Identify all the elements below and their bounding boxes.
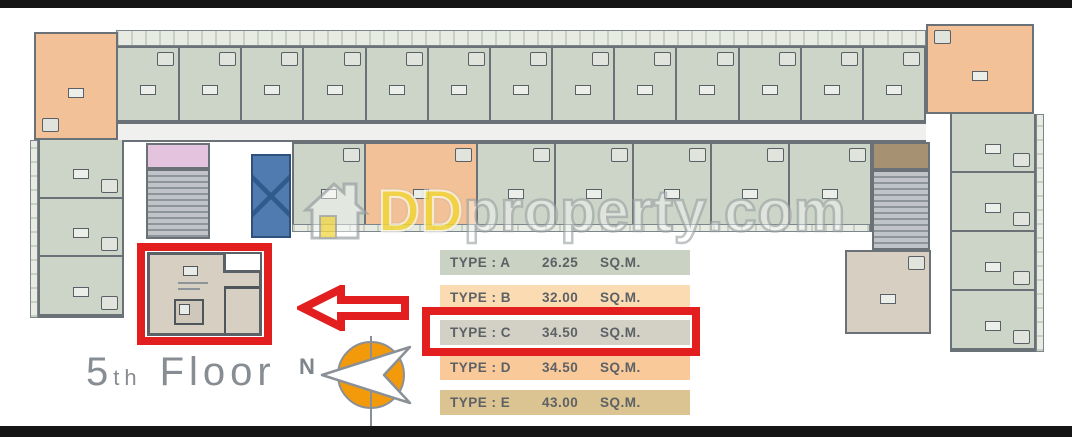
unit-label-chip [985, 203, 1001, 213]
floor-title: 5thFloor [86, 350, 276, 395]
legend-type-label: TYPE : E [450, 395, 542, 410]
right-core-roof [872, 142, 930, 170]
right-wing-units [950, 114, 1036, 352]
unit-label-chip [762, 85, 778, 95]
unit-bathroom [530, 52, 547, 66]
unit-label-chip [886, 85, 902, 95]
legend-area-unit: SQ.M. [600, 360, 690, 375]
legend-area-value: 32.00 [542, 290, 600, 305]
unit-cell [367, 46, 429, 122]
unit-bathroom [174, 299, 204, 325]
unit-bathroom [689, 148, 706, 162]
lift-lobby-room [146, 143, 210, 169]
watermark-house-icon [300, 176, 372, 247]
corner-unit-top-right [926, 24, 1034, 114]
unit-label-chip [985, 144, 1001, 154]
unit-bathroom [841, 52, 858, 66]
unit-bathroom [1013, 330, 1030, 344]
unit-cell [950, 291, 1036, 350]
type-c-unit-plan [147, 252, 262, 336]
unit-bathroom [406, 52, 423, 66]
unit-bathroom [767, 148, 784, 162]
unit-bathroom [654, 52, 671, 66]
unit-bathroom [533, 148, 550, 162]
unit-bathroom [455, 148, 472, 162]
unit-label-chip [985, 262, 1001, 272]
watermark-dd: DD [378, 180, 464, 244]
unit-bathroom [468, 52, 485, 66]
floorplan-page: DDproperty.com N 5thFloor [0, 0, 1072, 437]
legend-row: TYPE : E 43.00 SQ.M. [440, 390, 690, 415]
unit-cell [950, 173, 1036, 232]
unit-cell [38, 199, 124, 258]
unit-label-chip [513, 85, 529, 95]
legend-row: TYPE : D 34.50 SQ.M. [440, 355, 690, 380]
unit-cell [950, 114, 1036, 173]
watermark: DDproperty.com [300, 176, 846, 247]
unit-label-chip [637, 85, 653, 95]
legend-row-wrap: TYPE : D 34.50 SQ.M. [440, 355, 690, 380]
legend-type-label: TYPE : B [450, 290, 542, 305]
unit-bathroom [1013, 212, 1030, 226]
corner-unit-top-left [34, 32, 118, 140]
unit-cell [677, 46, 739, 122]
unit-label-chip [389, 85, 405, 95]
top-balcony-strip [116, 30, 926, 46]
unit-cell [615, 46, 677, 122]
unit-inner-wall [224, 286, 227, 333]
legend-area-unit: SQ.M. [600, 290, 690, 305]
unit-cell [740, 46, 802, 122]
unit-label-chip [68, 88, 84, 98]
compass-icon [318, 334, 422, 435]
unit-bathroom [281, 52, 298, 66]
unit-label-chip [575, 85, 591, 95]
lift-shaft [251, 154, 291, 238]
floor-plan [0, 0, 1072, 84]
unit-cell [38, 140, 124, 199]
unit-bathroom [101, 179, 118, 193]
unit-bathroom [344, 52, 361, 66]
unit-text-smudge [178, 282, 208, 284]
unit-cell [864, 46, 926, 122]
legend-area-value: 34.50 [542, 360, 600, 375]
unit-cell [429, 46, 491, 122]
unit-bathroom [717, 52, 734, 66]
unit-bathroom [1013, 153, 1030, 167]
unit-bathroom [343, 148, 360, 162]
top-black-bar [0, 0, 1072, 8]
unit-label-chip [985, 321, 1001, 331]
unit-cell [553, 46, 615, 122]
unit-cell [491, 46, 553, 122]
unit-bathroom [903, 52, 920, 66]
unit-label-chip [183, 266, 198, 276]
unit-bathroom [779, 52, 796, 66]
unit-plan-notch [223, 254, 260, 273]
legend-row-wrap: TYPE : C 34.50 SQ.M. [440, 320, 690, 345]
left-staircase [146, 169, 210, 239]
unit-bathroom [219, 52, 236, 66]
unit-cell [950, 232, 1036, 291]
unit-label-chip [73, 287, 89, 297]
legend-row-wrap: TYPE : E 43.00 SQ.M. [440, 390, 690, 415]
legend-highlight-frame [422, 307, 700, 356]
unit-text-smudge [178, 288, 200, 290]
unit-bathroom [1013, 271, 1030, 285]
unit-inner-wall [226, 286, 259, 289]
floor-number: 5 [86, 350, 113, 394]
pointer-arrow-icon [297, 285, 411, 336]
unit-cell [304, 46, 366, 122]
unit-cell [180, 46, 242, 122]
unit-bathroom [908, 256, 925, 270]
unit-label-chip [699, 85, 715, 95]
bottom-black-bar [0, 426, 1072, 437]
unit-label-chip [140, 85, 156, 95]
unit-cell [38, 257, 124, 316]
floor-word: Floor [160, 350, 276, 394]
right-lower-unit [845, 250, 931, 334]
unit-bathroom [849, 148, 866, 162]
unit-cell [118, 46, 180, 122]
unit-cell [242, 46, 304, 122]
legend-area-value: 43.00 [542, 395, 600, 410]
compass-north-label: N [299, 354, 315, 380]
legend-area-value: 26.25 [542, 255, 600, 270]
unit-cell [802, 46, 864, 122]
unit-bathroom [611, 148, 628, 162]
unit-type-legend: TYPE : A 26.25 SQ.M. TYPE : B 32.00 SQ.M… [440, 250, 690, 425]
watermark-com: .com [707, 180, 846, 244]
unit-label-chip [451, 85, 467, 95]
unit-label-chip [880, 294, 896, 304]
unit-bathroom [42, 118, 59, 132]
watermark-property: property [464, 180, 707, 244]
unit-bathroom [592, 52, 609, 66]
legend-type-label: TYPE : D [450, 360, 542, 375]
unit-bathroom [101, 237, 118, 251]
corridor [116, 122, 926, 142]
left-wing-balcony [30, 140, 38, 318]
right-wing-balcony [1036, 114, 1044, 352]
unit-bathroom [101, 296, 118, 310]
unit-label-chip [824, 85, 840, 95]
unit-label-chip [73, 228, 89, 238]
unit-label-chip [73, 169, 89, 179]
legend-row-wrap: TYPE : A 26.25 SQ.M. [440, 250, 690, 275]
unit-bathroom [157, 52, 174, 66]
floor-suffix: th [113, 365, 141, 390]
unit-label-chip [264, 85, 280, 95]
right-staircase [872, 170, 930, 250]
unit-label-chip [202, 85, 218, 95]
bathroom-fixture [179, 304, 190, 315]
unit-label-chip [972, 71, 988, 81]
left-wing-units [38, 140, 124, 318]
unit-label-chip [327, 85, 343, 95]
unit-bathroom [934, 30, 951, 44]
legend-area-unit: SQ.M. [600, 395, 690, 410]
legend-type-label: TYPE : A [450, 255, 542, 270]
top-row-units [116, 46, 926, 122]
legend-row: TYPE : A 26.25 SQ.M. [440, 250, 690, 275]
type-c-unit-highlight-frame [137, 243, 272, 345]
legend-area-unit: SQ.M. [600, 255, 690, 270]
